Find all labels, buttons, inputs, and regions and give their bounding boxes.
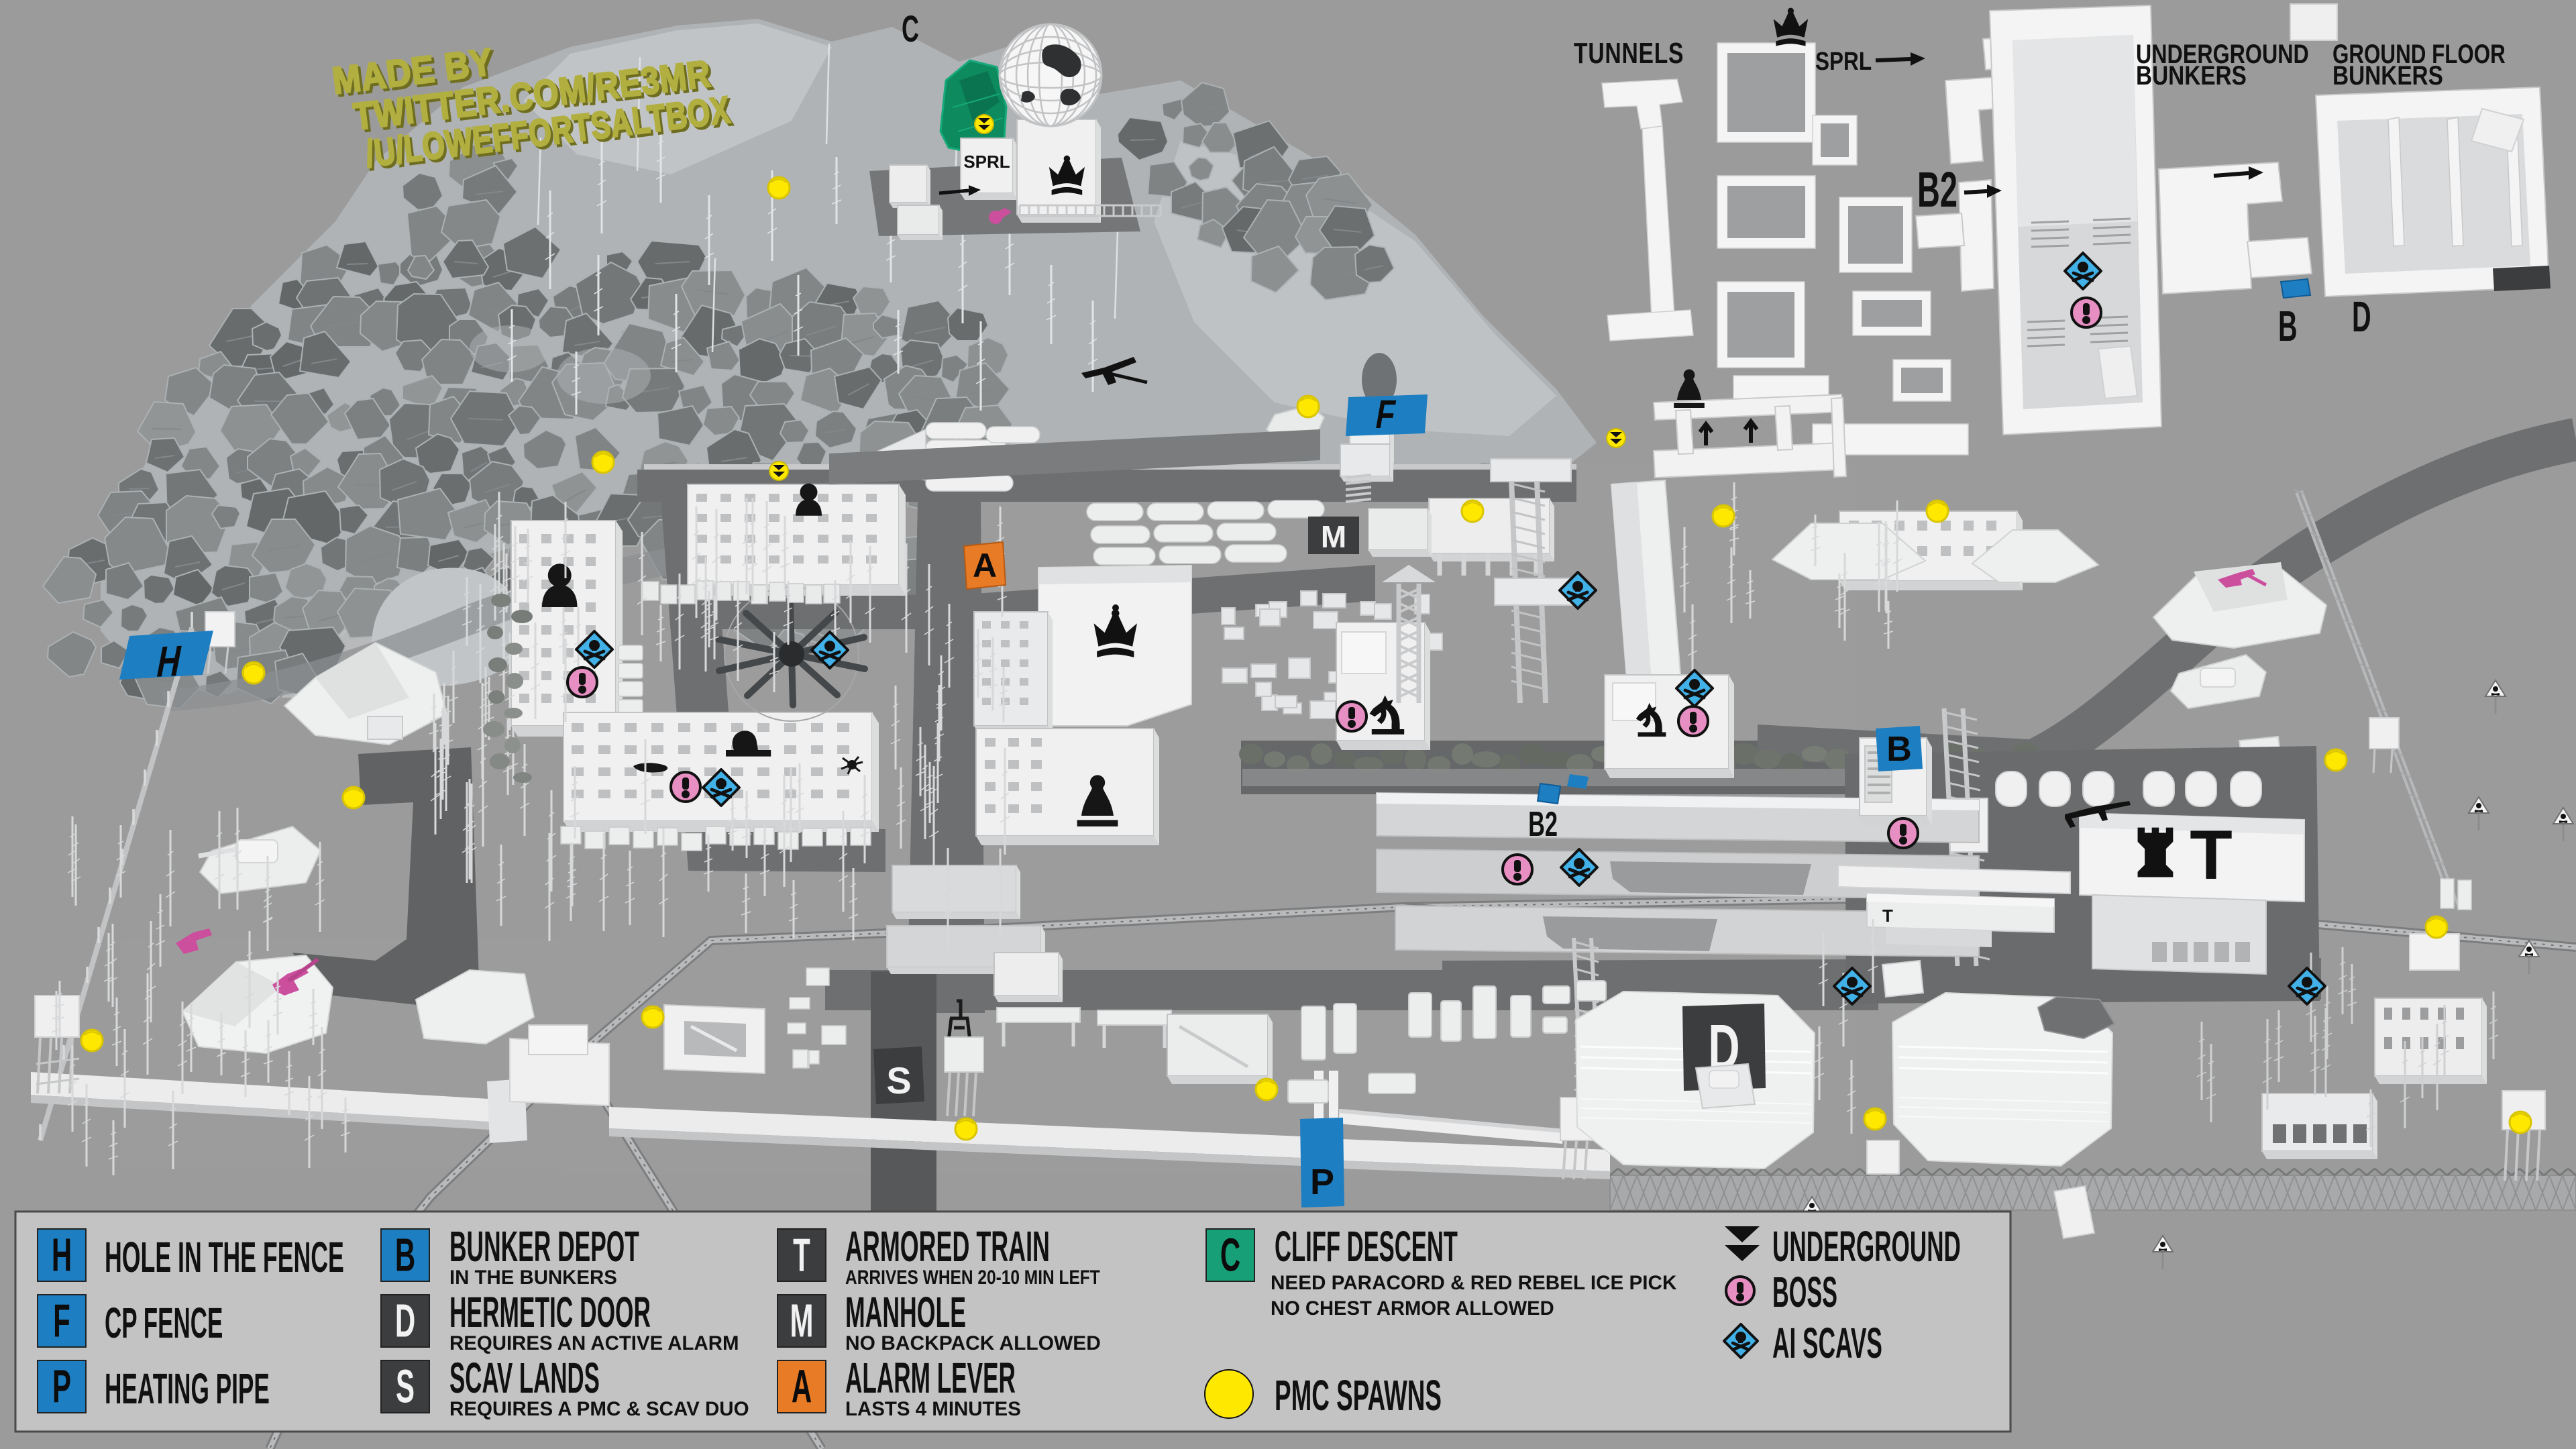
svg-text:H: H (52, 1230, 72, 1282)
svg-text:MANHOLE: MANHOLE (845, 1288, 966, 1336)
svg-text:AI SCAVS: AI SCAVS (1772, 1319, 1882, 1367)
svg-text:T: T (793, 1230, 810, 1282)
svg-text:NEED PARACORD & RED REBEL ICE: NEED PARACORD & RED REBEL ICE PICK (1271, 1272, 1677, 1294)
svg-text:REQUIRES A PMC & SCAV DUO: REQUIRES A PMC & SCAV DUO (449, 1398, 749, 1420)
svg-text:REQUIRES AN ACTIVE ALARM: REQUIRES AN ACTIVE ALARM (449, 1332, 739, 1354)
svg-text:A: A (792, 1361, 812, 1413)
svg-text:T: T (2190, 816, 2233, 894)
svg-text:M: M (790, 1295, 814, 1348)
svg-text:BUNKER DEPOT: BUNKER DEPOT (449, 1222, 639, 1271)
svg-text:SPRL: SPRL (963, 152, 1010, 172)
svg-text:M: M (1321, 519, 1346, 554)
svg-text:B2: B2 (1917, 162, 1957, 217)
svg-text:UNDERGROUND: UNDERGROUND (1772, 1222, 1961, 1271)
svg-text:CLIFF DESCENT: CLIFF DESCENT (1275, 1222, 1458, 1271)
svg-text:A: A (973, 547, 997, 584)
svg-text:SCAV LANDS: SCAV LANDS (449, 1354, 600, 1402)
svg-text:D: D (395, 1295, 415, 1348)
svg-text:CP FENCE: CP FENCE (105, 1299, 223, 1347)
svg-text:S: S (396, 1361, 415, 1413)
svg-text:C: C (1220, 1230, 1240, 1282)
svg-text:P: P (52, 1361, 71, 1413)
svg-text:C: C (902, 7, 919, 50)
svg-text:BUNKERS: BUNKERS (2136, 60, 2247, 91)
svg-text:B: B (2278, 303, 2298, 351)
svg-text:ARRIVES WHEN 20-10 MIN LEFT: ARRIVES WHEN 20-10 MIN LEFT (845, 1266, 1100, 1289)
svg-text:HERMETIC DOOR: HERMETIC DOOR (449, 1288, 651, 1336)
svg-text:S: S (886, 1059, 911, 1102)
svg-text:TUNNELS: TUNNELS (1574, 38, 1684, 70)
svg-text:HEATING PIPE: HEATING PIPE (105, 1364, 270, 1413)
svg-text:B: B (395, 1230, 415, 1282)
svg-text:ALARM LEVER: ALARM LEVER (845, 1354, 1016, 1402)
svg-text:BUNKERS: BUNKERS (2332, 60, 2443, 91)
svg-text:NO BACKPACK ALLOWED: NO BACKPACK ALLOWED (845, 1332, 1101, 1354)
svg-text:BOSS: BOSS (1772, 1269, 1837, 1316)
svg-text:PMC SPAWNS: PMC SPAWNS (1275, 1373, 1442, 1420)
svg-text:LASTS 4 MINUTES: LASTS 4 MINUTES (845, 1398, 1021, 1420)
svg-text:HOLE IN THE FENCE: HOLE IN THE FENCE (105, 1233, 344, 1281)
svg-text:P: P (1310, 1162, 1334, 1202)
svg-text:ARMORED TRAIN: ARMORED TRAIN (845, 1222, 1050, 1271)
svg-text:B2: B2 (1528, 805, 1558, 844)
svg-text:T: T (1882, 906, 1893, 926)
svg-text:NO CHEST ARMOR ALLOWED: NO CHEST ARMOR ALLOWED (1271, 1297, 1554, 1320)
svg-text:D: D (2352, 294, 2371, 341)
svg-text:F: F (53, 1295, 70, 1348)
svg-text:SPRL: SPRL (1815, 47, 1872, 75)
svg-text:B: B (1886, 730, 1912, 769)
svg-text:IN THE BUNKERS: IN THE BUNKERS (449, 1267, 617, 1289)
